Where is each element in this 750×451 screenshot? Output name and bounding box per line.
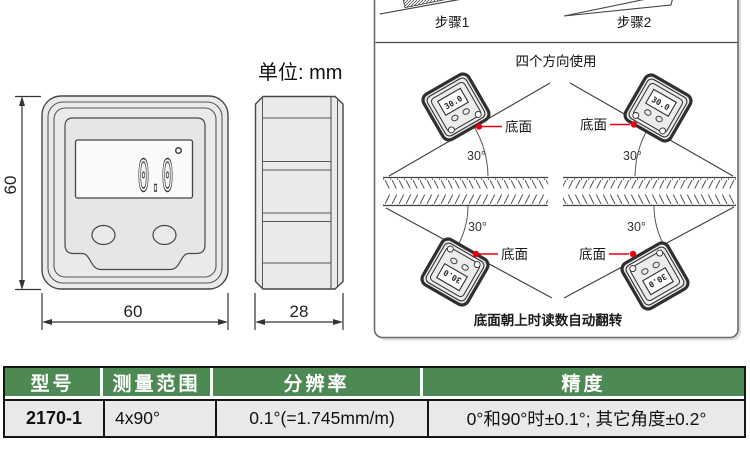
- marker-dot: [630, 251, 636, 257]
- marker-dot: [631, 121, 637, 127]
- cell-range: 4x90°: [105, 401, 215, 436]
- button-left: [92, 226, 115, 245]
- step1-label: 步骤1: [435, 15, 470, 30]
- dimension-height-label: 60: [1, 176, 20, 195]
- button-right: [153, 226, 176, 245]
- bottom-face-label-2: 底面: [580, 118, 607, 133]
- angle-label-1: 30°: [467, 149, 486, 163]
- spec-table: 型号 测量范围 分辨率 精度 2170-1 4x90° 0.1°(=1.745m…: [3, 366, 746, 438]
- lcd-digits: 0.0: [138, 151, 174, 202]
- spec-table-header: 型号 测量范围 分辨率 精度: [5, 368, 744, 399]
- unit-label: 单位: mm: [258, 61, 342, 84]
- cell-resolution: 0.1°(=1.745mm/m): [217, 401, 427, 436]
- angle-label-2: 30°: [623, 149, 642, 163]
- angle-label-3: 30°: [468, 220, 487, 234]
- marker-dot: [476, 123, 482, 129]
- cell-model: 2170-1: [5, 401, 103, 436]
- step2-label: 步骤2: [617, 15, 652, 30]
- cell-accuracy: 0°和90°时±0.1°; 其它角度±0.2°: [429, 401, 744, 436]
- dimension-drawing: 单位: mm 0.0 60: [0, 40, 370, 345]
- dimension-depth-label: 28: [290, 302, 309, 321]
- spec-table-row: 2170-1 4x90° 0.1°(=1.745mm/m) 0°和90°时±0.…: [5, 399, 744, 436]
- lcd-display: [76, 140, 193, 198]
- bottom-face-label-4: 底面: [579, 247, 606, 262]
- flip-caption: 底面朝上时读数自动翻转: [474, 312, 623, 328]
- header-resolution: 分辨率: [213, 368, 423, 396]
- page: { "unit_label": "单位: mm", "drawing": { "…: [0, 0, 750, 451]
- angle-label-4: 30°: [627, 220, 646, 234]
- usage-diagram: 30.0 步骤1 步骤2 四个方向使用: [370, 0, 750, 346]
- front-view: 0.0: [42, 96, 228, 289]
- bottom-face-label-1: 底面: [505, 120, 532, 135]
- header-accuracy: 精度: [423, 368, 744, 396]
- marker-dot: [473, 251, 479, 257]
- four-directions-title: 四个方向使用: [516, 53, 597, 69]
- bottom-face-label-3: 底面: [501, 247, 528, 262]
- header-range: 测量范围: [103, 368, 213, 396]
- header-model: 型号: [5, 368, 103, 396]
- dimension-width-label: 60: [124, 302, 143, 321]
- side-view: [256, 97, 344, 290]
